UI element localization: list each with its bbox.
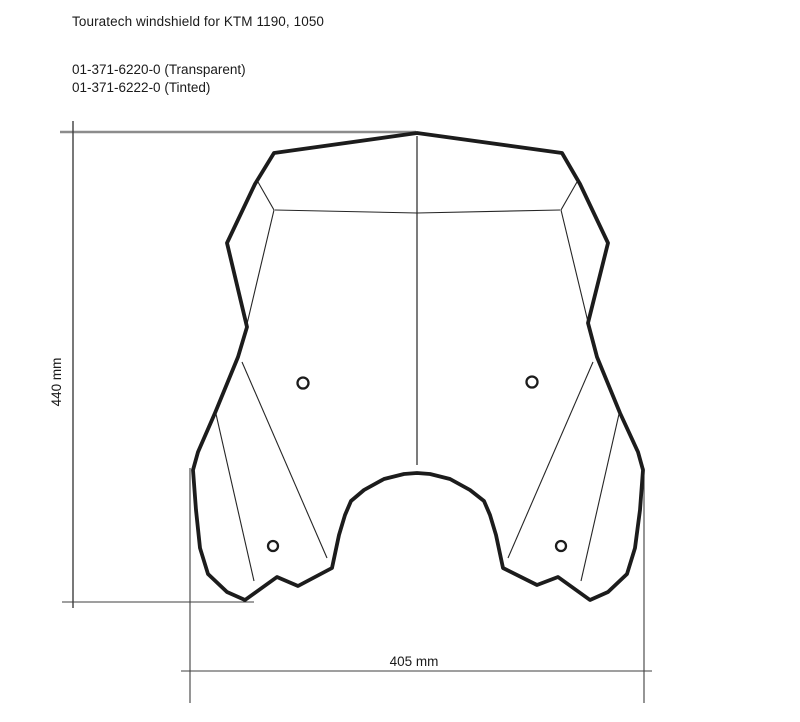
left-fold-crease: [247, 182, 274, 324]
technical-drawing-page: Touratech windshield for KTM 1190, 1050 …: [0, 0, 800, 722]
mounting-hole-lower-right: [556, 541, 566, 551]
left-lower-crease-inner: [242, 362, 327, 558]
windshield-drawing-canvas: 440 mm 405 mm: [0, 0, 800, 722]
mounting-hole-upper-left: [298, 378, 309, 389]
right-lower-crease-inner: [508, 362, 593, 558]
height-dimension-label: 440 mm: [49, 358, 64, 407]
mounting-hole-lower-left: [268, 541, 278, 551]
right-lower-crease-outer: [581, 414, 619, 581]
left-lower-crease-outer: [216, 414, 254, 581]
right-fold-crease: [561, 182, 588, 322]
width-dimension-label: 405 mm: [390, 654, 439, 669]
mounting-hole-upper-right: [527, 377, 538, 388]
windshield-outline: [193, 133, 643, 600]
